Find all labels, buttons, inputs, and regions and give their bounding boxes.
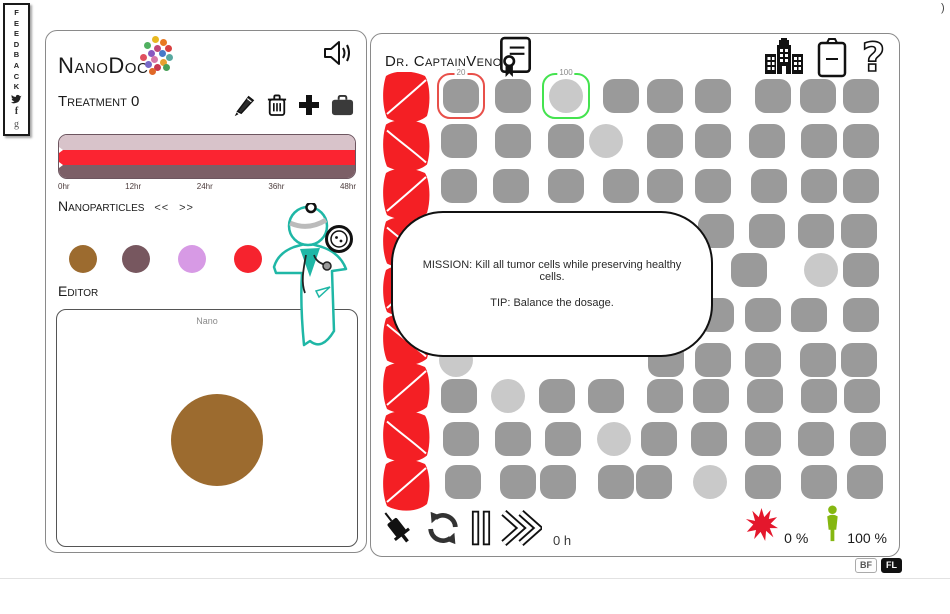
tumor-splat-icon [745, 506, 778, 548]
feedback-letter: C [14, 73, 19, 81]
help-icon[interactable]: ? [860, 38, 887, 80]
bf-button[interactable]: BF [855, 558, 877, 573]
cell-healthy[interactable] [695, 343, 731, 377]
cell-special[interactable] [693, 465, 727, 499]
cell-healthy[interactable] [647, 124, 683, 158]
editor-nanoparticle[interactable] [171, 394, 263, 486]
bag-icon[interactable] [331, 94, 354, 117]
speaker-icon[interactable] [322, 39, 356, 72]
nanoparticle-swatch[interactable] [69, 245, 97, 273]
particles-next-button[interactable]: >> [179, 202, 194, 214]
timeline-tick: 24hr [197, 182, 213, 191]
timeline-tick: 12hr [125, 182, 141, 191]
cell-healthy[interactable] [745, 422, 781, 456]
cell-healthy[interactable] [843, 169, 879, 203]
cell-healthy[interactable] [540, 465, 576, 499]
doctor-mascot [270, 203, 354, 355]
logo-dots-icon [134, 34, 178, 78]
cell-healthy[interactable] [695, 124, 731, 158]
editor-header: Editor [58, 283, 98, 299]
person-icon [822, 505, 841, 548]
logo-dot [144, 42, 151, 49]
corner-glyph: ) [941, 2, 945, 14]
nanoparticles-header: Nanoparticles << >> [58, 198, 194, 214]
timeline-ticks: 0hr12hr24hr36hr48hr [58, 182, 356, 191]
syringe-icon[interactable] [379, 508, 415, 548]
nanoparticle-swatch[interactable] [178, 245, 206, 273]
cell-healthy[interactable] [647, 79, 683, 113]
google-g-icon[interactable]: g [11, 120, 22, 130]
cell-healthy[interactable] [731, 253, 767, 287]
cell-healthy[interactable] [801, 169, 837, 203]
cell-healthy[interactable] [844, 379, 880, 413]
cell-healthy[interactable] [441, 124, 477, 158]
treatment-panel: NanoDoc Treatment 0 [45, 30, 367, 553]
cell-healthy[interactable] [800, 79, 836, 113]
cell-special[interactable] [597, 422, 631, 456]
cell-healthy[interactable] [841, 343, 877, 377]
fast-forward-icon[interactable] [500, 509, 542, 547]
logo-dot [145, 61, 152, 68]
marked-cell-20[interactable]: 20 [437, 73, 485, 119]
svg-text:?: ? [862, 38, 885, 80]
cell-healthy[interactable] [798, 214, 834, 248]
cell-healthy[interactable] [749, 124, 785, 158]
cell-healthy[interactable] [691, 422, 727, 456]
cell-healthy[interactable] [545, 422, 581, 456]
cell-healthy[interactable] [850, 422, 886, 456]
timeline-stripe-top [59, 135, 355, 150]
cell-healthy[interactable] [641, 422, 677, 456]
cell-healthy[interactable] [847, 465, 883, 499]
cell-healthy[interactable] [441, 379, 477, 413]
cell-healthy[interactable] [843, 124, 879, 158]
cell-healthy[interactable] [695, 169, 731, 203]
marked-cell-100[interactable]: 100 [542, 73, 590, 119]
facebook-f-icon[interactable]: f [11, 107, 22, 117]
feedback-letter: A [14, 62, 19, 70]
cell-special[interactable] [491, 379, 525, 413]
cell-healthy[interactable] [755, 79, 791, 113]
cell-healthy[interactable] [495, 124, 531, 158]
timeline-tick: 0hr [58, 182, 70, 191]
cell-healthy[interactable] [800, 343, 836, 377]
feedback-letter: K [14, 83, 19, 91]
cell-healthy[interactable] [445, 465, 481, 499]
tissue-panel: Dr. CaptainVenom [370, 33, 900, 557]
cell-healthy[interactable] [588, 379, 624, 413]
fl-button[interactable]: FL [881, 558, 902, 573]
cell-healthy[interactable] [647, 169, 683, 203]
treatment-timeline-bar[interactable] [58, 134, 356, 179]
timeline-stripe-bottom [59, 165, 355, 179]
cell-healthy[interactable] [801, 379, 837, 413]
cell-healthy[interactable] [548, 169, 584, 203]
cell-healthy[interactable] [636, 465, 672, 499]
cell-healthy[interactable] [843, 79, 879, 113]
logo-dot [165, 45, 172, 52]
timeline-marker [59, 162, 63, 168]
cell-healthy[interactable] [493, 169, 529, 203]
cell-healthy[interactable] [843, 253, 879, 287]
cell-healthy[interactable] [603, 79, 639, 113]
timeline-marker [59, 147, 63, 153]
cell-healthy[interactable] [443, 422, 479, 456]
cell-healthy[interactable] [801, 465, 837, 499]
health-percentage: 100 % [847, 530, 887, 548]
cell-healthy[interactable] [647, 379, 683, 413]
logo-dot [166, 54, 173, 61]
cell-special[interactable] [549, 79, 583, 113]
dose-label: 100 [557, 69, 574, 77]
timeline-tick: 48hr [340, 182, 356, 191]
treatment-label: Treatment 0 [58, 93, 139, 110]
feedback-letter: F [14, 9, 19, 17]
cell-healthy[interactable] [801, 124, 837, 158]
dose-label: 20 [455, 69, 468, 77]
logo-dot [152, 36, 159, 43]
certificate-icon[interactable] [497, 36, 533, 83]
feedback-letter: E [14, 20, 19, 28]
feedback-letter: E [14, 30, 19, 38]
mission-text: MISSION: Kill all tumor cells while pres… [393, 259, 711, 283]
cell-healthy[interactable] [791, 298, 827, 332]
cell-healthy[interactable] [841, 214, 877, 248]
clipboard-icon[interactable] [817, 38, 847, 78]
cell-healthy[interactable] [745, 465, 781, 499]
cell-healthy[interactable] [843, 298, 879, 332]
cell-healthy[interactable] [745, 343, 781, 377]
pencil-icon[interactable] [232, 93, 256, 117]
logo-dot [140, 54, 147, 61]
cell-healthy[interactable] [495, 79, 531, 113]
tumor-percentage: 0 % [784, 530, 808, 548]
head-mirror-icon [307, 203, 316, 212]
cell-healthy[interactable] [495, 422, 531, 456]
cell-special[interactable] [804, 253, 838, 287]
cell-healthy[interactable] [749, 214, 785, 248]
nanoparticle-swatch[interactable] [234, 245, 262, 273]
treatment-number: 0 [131, 93, 139, 110]
cell-healthy[interactable] [443, 79, 479, 113]
doctor-name-title: Dr. CaptainVenom [385, 53, 511, 70]
cell-healthy[interactable] [539, 379, 575, 413]
add-icon[interactable] [298, 94, 320, 116]
cell-healthy[interactable] [603, 169, 639, 203]
feedback-bar[interactable]: FEEDBACK f g [3, 3, 30, 136]
restart-icon[interactable] [424, 509, 462, 547]
cell-healthy[interactable] [548, 124, 584, 158]
cell-healthy[interactable] [751, 169, 787, 203]
logo-dot [149, 68, 156, 75]
cell-healthy[interactable] [441, 169, 477, 203]
cell-healthy[interactable] [745, 298, 781, 332]
mission-dialog[interactable]: MISSION: Kill all tumor cells while pres… [391, 211, 713, 357]
footer-buttons: BF FL [855, 558, 902, 573]
trash-icon[interactable] [267, 93, 287, 117]
cell-healthy[interactable] [747, 379, 783, 413]
cell-healthy[interactable] [695, 79, 731, 113]
pause-icon[interactable] [471, 509, 491, 547]
logo-dot [163, 64, 170, 71]
cell-healthy[interactable] [598, 465, 634, 499]
cell-healthy[interactable] [500, 465, 536, 499]
hospital-icon[interactable] [764, 38, 804, 78]
particles-prev-button[interactable]: << [154, 202, 169, 214]
logo-dot [151, 56, 158, 63]
bottom-divider [0, 578, 950, 579]
feedback-letter: B [14, 51, 19, 59]
logo-dot [159, 50, 166, 57]
tip-text: TIP: Balance the dosage. [464, 297, 640, 309]
nanoparticle-swatch[interactable] [122, 245, 150, 273]
twitter-bird-icon[interactable] [11, 94, 22, 104]
cell-healthy[interactable] [798, 422, 834, 456]
feedback-letter: D [14, 41, 19, 49]
timeline-tick: 36hr [268, 182, 284, 191]
elapsed-time: 0 h [553, 533, 571, 548]
cell-special[interactable] [589, 124, 623, 158]
timeline-stripe-middle [59, 150, 355, 165]
screen: ) FEEDBACK f g NanoDoc Treatment 0 [0, 0, 950, 614]
cell-healthy[interactable] [693, 379, 729, 413]
